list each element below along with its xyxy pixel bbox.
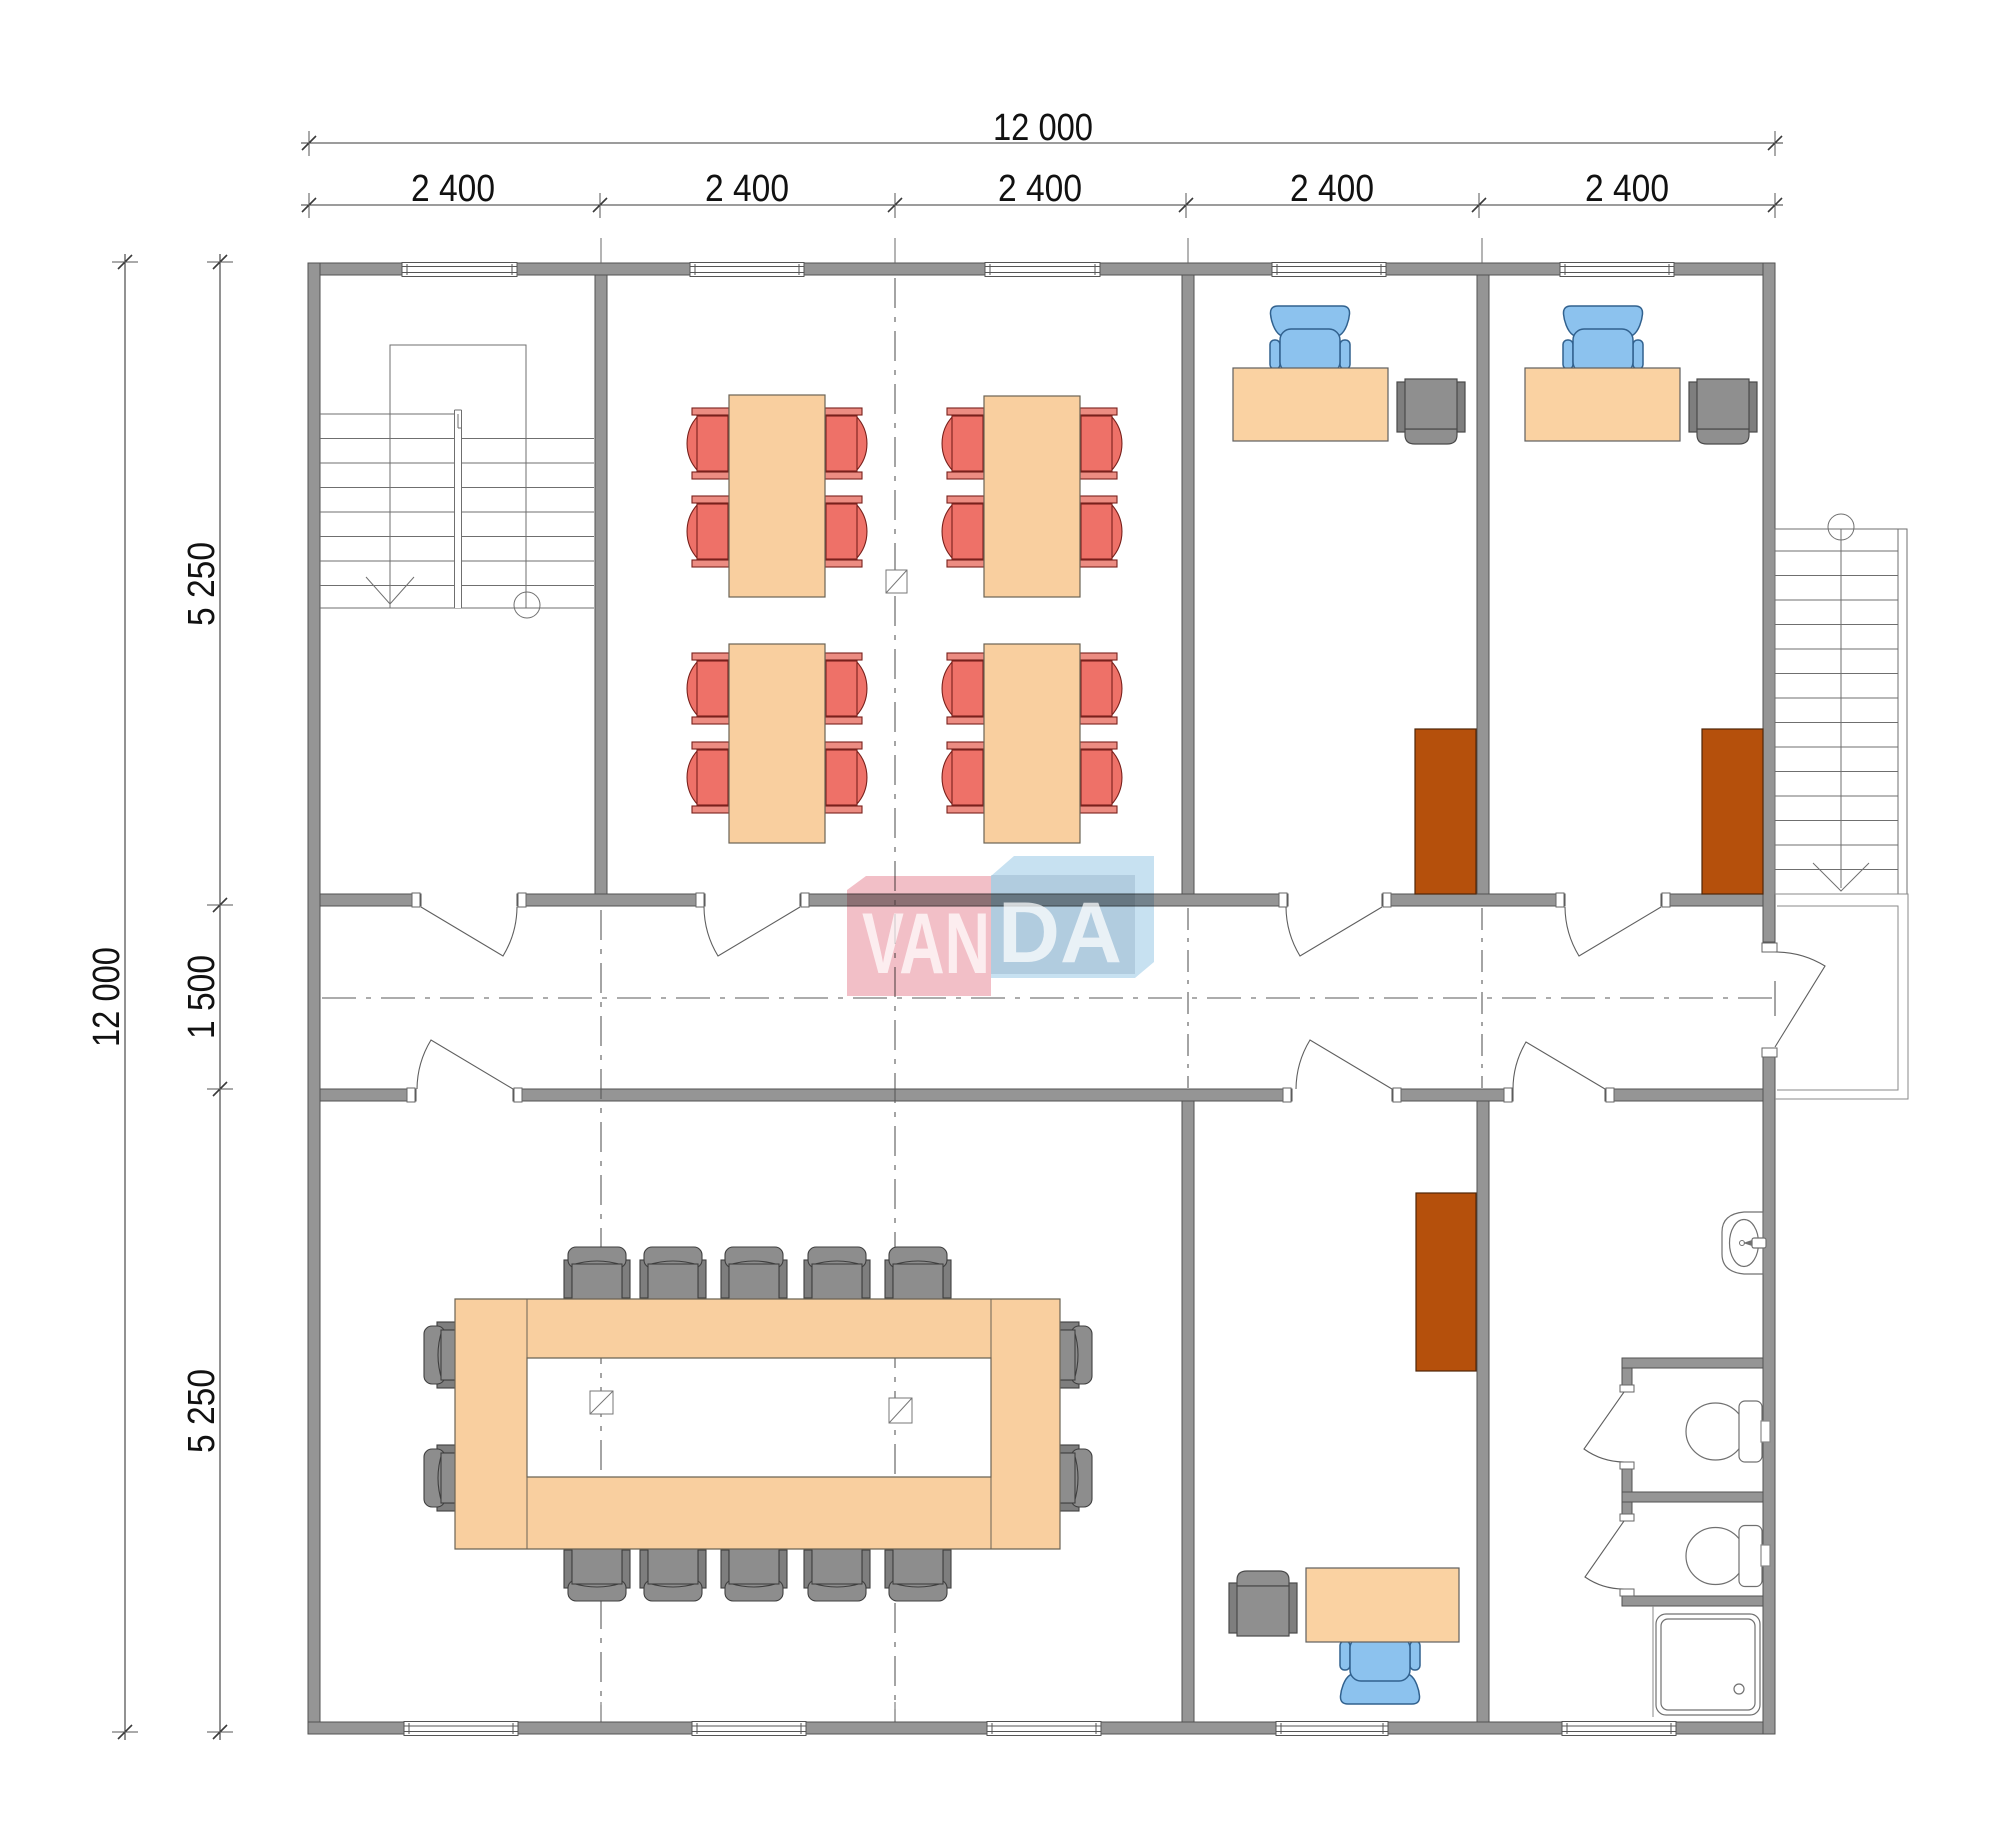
svg-text:5 250: 5 250 [181, 1369, 223, 1453]
svg-text:2 400: 2 400 [705, 168, 789, 210]
svg-text:1 500: 1 500 [181, 955, 223, 1039]
svg-text:2 400: 2 400 [411, 168, 495, 210]
svg-text:2 400: 2 400 [1585, 168, 1669, 210]
svg-text:12 000: 12 000 [993, 107, 1093, 149]
svg-text:12 000: 12 000 [86, 947, 128, 1047]
svg-text:VAN: VAN [862, 896, 990, 992]
svg-text:2 400: 2 400 [998, 168, 1082, 210]
svg-text:DA: DA [998, 885, 1122, 981]
svg-text:5 250: 5 250 [181, 542, 223, 626]
svg-text:2 400: 2 400 [1290, 168, 1374, 210]
